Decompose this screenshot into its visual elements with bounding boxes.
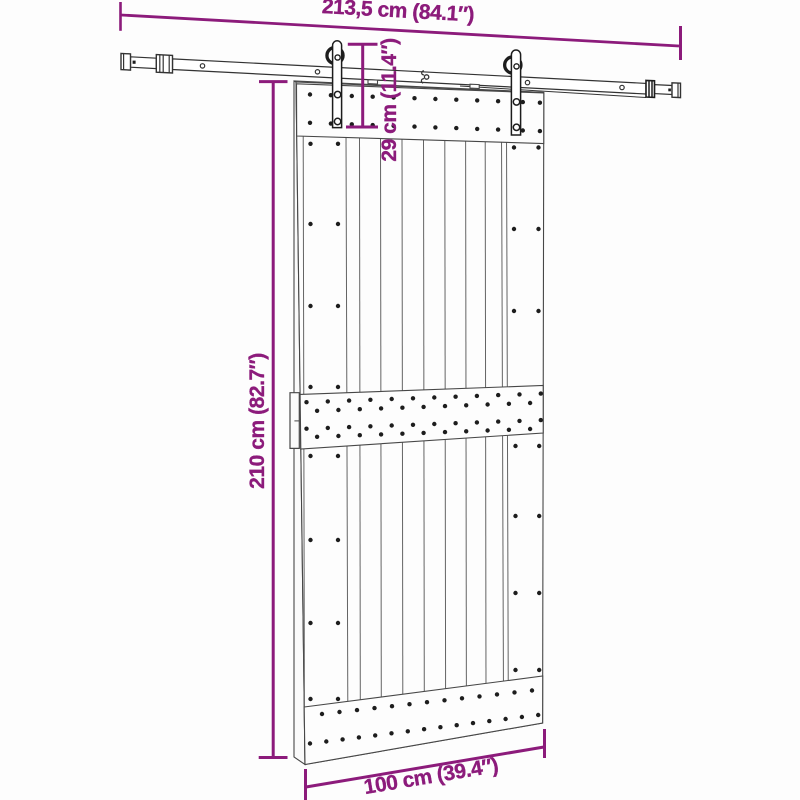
svg-text:29 cm (11.4″): 29 cm (11.4″) [378,38,401,161]
svg-text:100 cm (39.4″): 100 cm (39.4″) [362,754,500,799]
svg-text:210 cm (82.7″): 210 cm (82.7″) [246,353,269,489]
svg-text:213,5 cm (84.1″): 213,5 cm (84.1″) [321,0,474,27]
